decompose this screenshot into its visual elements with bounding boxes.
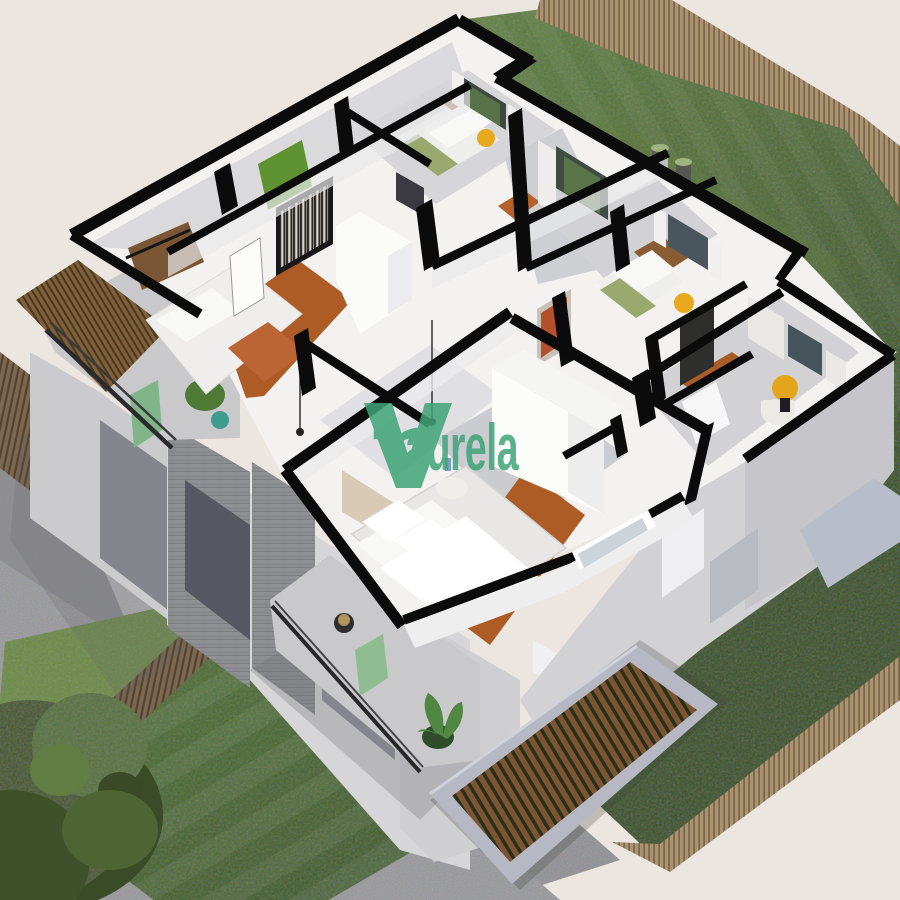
svg-text:aurela: aurela [405,411,519,485]
